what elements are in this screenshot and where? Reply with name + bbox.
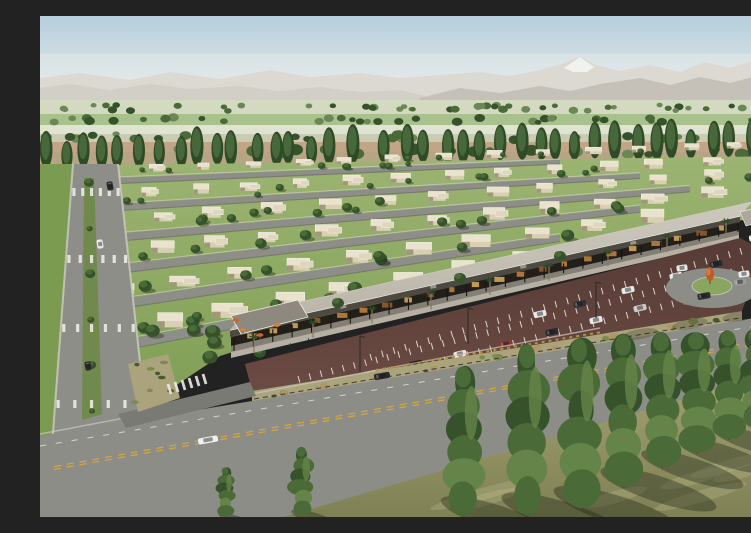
- house: [644, 159, 662, 169]
- house: [293, 179, 309, 188]
- house: [704, 158, 724, 166]
- house: [194, 184, 209, 194]
- house: [346, 250, 371, 262]
- house: [685, 144, 699, 151]
- house: [599, 180, 617, 189]
- house: [149, 164, 165, 171]
- house: [585, 147, 601, 154]
- house: [142, 187, 159, 196]
- house: [170, 276, 200, 286]
- house: [158, 313, 183, 328]
- house: [428, 191, 448, 200]
- house: [337, 157, 351, 164]
- house: [483, 208, 508, 220]
- house: [287, 258, 313, 270]
- house: [641, 209, 664, 223]
- house: [494, 168, 511, 177]
- house: [702, 187, 727, 198]
- house: [343, 175, 363, 185]
- house: [315, 225, 341, 237]
- house: [151, 241, 174, 253]
- house: [525, 228, 549, 239]
- house: [600, 161, 618, 171]
- house: [650, 175, 667, 184]
- house: [319, 199, 341, 209]
- house: [487, 150, 502, 158]
- house: [198, 163, 209, 170]
- house: [246, 162, 261, 168]
- house: [581, 220, 605, 231]
- house: [727, 143, 741, 149]
- house: [445, 170, 464, 179]
- house: [537, 183, 553, 193]
- house: [641, 194, 667, 204]
- house: [240, 183, 260, 191]
- aerial-community-render: [40, 16, 751, 517]
- house: [154, 213, 175, 222]
- house: [371, 219, 394, 230]
- house: [487, 187, 509, 197]
- render-canvas: [40, 16, 751, 517]
- house: [385, 155, 400, 162]
- house: [205, 236, 228, 248]
- house: [296, 159, 313, 165]
- house: [406, 242, 431, 254]
